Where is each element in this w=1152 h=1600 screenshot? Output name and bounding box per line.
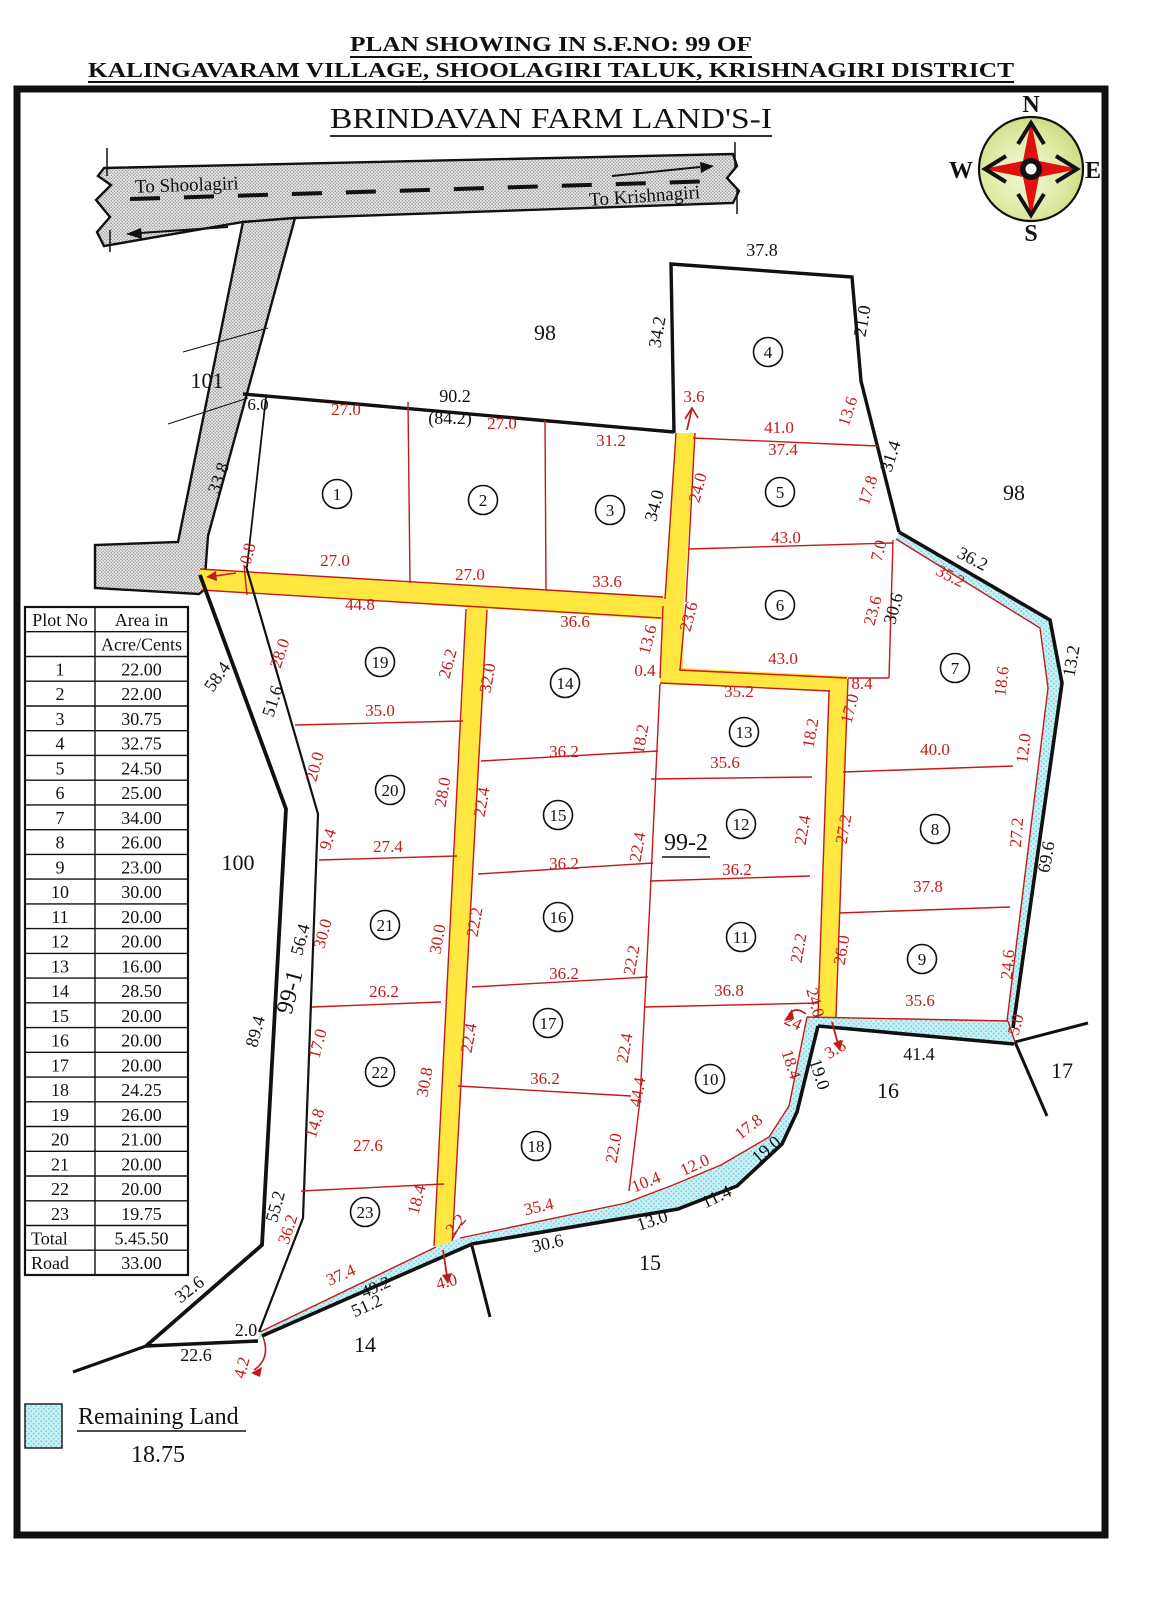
svg-text:36.6: 36.6 <box>560 612 590 631</box>
svg-text:16: 16 <box>877 1078 899 1103</box>
svg-text:98: 98 <box>1003 480 1025 505</box>
svg-text:7: 7 <box>56 808 65 828</box>
svg-text:Road: Road <box>31 1253 69 1273</box>
svg-text:18: 18 <box>51 1080 69 1100</box>
svg-text:27.0: 27.0 <box>320 551 350 570</box>
svg-text:100: 100 <box>222 850 255 875</box>
svg-text:6: 6 <box>56 783 65 803</box>
svg-text:28.50: 28.50 <box>121 981 162 1001</box>
svg-text:31.2: 31.2 <box>596 431 626 450</box>
svg-text:20: 20 <box>382 781 399 800</box>
svg-text:32.75: 32.75 <box>121 734 162 754</box>
svg-text:2: 2 <box>479 491 488 510</box>
svg-text:15: 15 <box>639 1250 661 1275</box>
svg-text:36.2: 36.2 <box>549 964 579 983</box>
svg-text:35.2: 35.2 <box>724 682 754 701</box>
svg-text:15: 15 <box>550 806 567 825</box>
svg-text:3.6: 3.6 <box>683 387 704 406</box>
svg-text:34.00: 34.00 <box>121 808 162 828</box>
svg-text:21: 21 <box>377 916 394 935</box>
svg-text:1: 1 <box>333 485 342 504</box>
svg-text:36.2: 36.2 <box>530 1069 560 1088</box>
svg-text:5: 5 <box>776 483 785 502</box>
svg-text:14: 14 <box>51 981 69 1001</box>
svg-text:20.00: 20.00 <box>121 1055 162 1075</box>
svg-text:(84.2): (84.2) <box>428 408 472 429</box>
svg-text:98: 98 <box>534 320 556 345</box>
svg-text:22.00: 22.00 <box>121 659 162 679</box>
svg-text:10: 10 <box>702 1070 719 1089</box>
svg-text:21.00: 21.00 <box>121 1130 162 1150</box>
svg-text:20.00: 20.00 <box>121 907 162 927</box>
svg-text:26.00: 26.00 <box>121 1105 162 1125</box>
svg-text:23.00: 23.00 <box>121 857 162 877</box>
svg-text:37.4: 37.4 <box>768 440 798 459</box>
svg-text:35.0: 35.0 <box>365 701 395 720</box>
svg-text:2.0: 2.0 <box>235 1320 258 1340</box>
svg-text:Remaining Land: Remaining Land <box>78 1404 239 1430</box>
svg-text:PLAN SHOWING IN S.F.NO: 99 OF: PLAN SHOWING IN S.F.NO: 99 OF <box>350 32 752 56</box>
svg-text:W: W <box>949 158 973 184</box>
svg-text:33.6: 33.6 <box>592 572 622 591</box>
svg-text:30.75: 30.75 <box>121 709 162 729</box>
svg-text:14: 14 <box>354 1332 376 1357</box>
svg-text:41.0: 41.0 <box>764 418 794 437</box>
svg-text:19.75: 19.75 <box>121 1204 162 1224</box>
svg-text:11: 11 <box>733 928 749 947</box>
svg-text:90.2: 90.2 <box>439 386 471 406</box>
svg-text:Acre/Cents: Acre/Cents <box>101 635 182 655</box>
svg-text:11: 11 <box>51 907 68 927</box>
svg-text:27.2: 27.2 <box>1006 817 1028 848</box>
svg-text:37.8: 37.8 <box>913 877 943 896</box>
svg-text:17: 17 <box>1051 1058 1073 1083</box>
svg-text:99-2: 99-2 <box>664 830 708 856</box>
svg-text:16: 16 <box>51 1031 69 1051</box>
svg-text:9: 9 <box>918 950 927 969</box>
svg-text:27.0: 27.0 <box>455 565 485 584</box>
svg-text:19: 19 <box>51 1105 69 1125</box>
svg-text:6.0: 6.0 <box>247 395 268 414</box>
svg-text:37.8: 37.8 <box>746 240 778 260</box>
svg-text:22: 22 <box>51 1179 69 1199</box>
svg-text:5.45.50: 5.45.50 <box>115 1229 169 1249</box>
svg-text:22.00: 22.00 <box>121 684 162 704</box>
svg-text:3: 3 <box>606 501 615 520</box>
svg-text:S: S <box>1024 221 1037 247</box>
svg-text:8: 8 <box>931 820 940 839</box>
svg-text:12: 12 <box>51 932 69 952</box>
svg-text:26.00: 26.00 <box>121 833 162 853</box>
svg-text:24.25: 24.25 <box>121 1080 162 1100</box>
svg-text:27.0: 27.0 <box>331 400 361 419</box>
svg-text:4: 4 <box>764 343 773 362</box>
svg-text:14: 14 <box>557 674 575 693</box>
svg-text:15: 15 <box>51 1006 69 1026</box>
svg-text:0.4: 0.4 <box>634 661 656 680</box>
svg-text:20.00: 20.00 <box>121 1179 162 1199</box>
svg-text:19: 19 <box>372 653 389 672</box>
svg-text:44.8: 44.8 <box>345 595 375 614</box>
svg-text:16: 16 <box>550 908 567 927</box>
svg-text:43.0: 43.0 <box>771 528 801 547</box>
svg-text:23: 23 <box>51 1204 69 1224</box>
svg-text:9: 9 <box>56 857 65 877</box>
svg-text:36.8: 36.8 <box>714 981 744 1000</box>
svg-text:101: 101 <box>191 368 224 393</box>
svg-text:27.4: 27.4 <box>373 837 403 856</box>
svg-text:36.2: 36.2 <box>549 854 579 873</box>
svg-text:26.2: 26.2 <box>369 982 399 1001</box>
svg-text:18: 18 <box>528 1137 545 1156</box>
svg-text:18.75: 18.75 <box>131 1442 185 1468</box>
svg-text:21: 21 <box>51 1154 69 1174</box>
svg-text:20: 20 <box>51 1130 69 1150</box>
svg-text:E: E <box>1085 158 1101 184</box>
svg-text:20.00: 20.00 <box>121 932 162 952</box>
svg-text:23: 23 <box>357 1203 374 1222</box>
svg-text:36.2: 36.2 <box>722 860 752 879</box>
svg-text:Plot No: Plot No <box>32 610 88 630</box>
svg-text:To Shoolagiri: To Shoolagiri <box>135 173 239 198</box>
svg-text:40.0: 40.0 <box>920 740 950 759</box>
svg-text:33.00: 33.00 <box>121 1253 162 1273</box>
svg-text:8: 8 <box>56 833 65 853</box>
svg-text:Total: Total <box>31 1229 68 1249</box>
svg-text:7: 7 <box>951 659 960 678</box>
svg-text:20.00: 20.00 <box>121 1031 162 1051</box>
svg-text:35.6: 35.6 <box>710 753 740 772</box>
svg-text:27.6: 27.6 <box>353 1136 383 1155</box>
svg-text:22: 22 <box>372 1063 389 1082</box>
svg-text:22.6: 22.6 <box>180 1345 212 1365</box>
svg-text:BRINDAVAN FARM LAND'S-I: BRINDAVAN FARM LAND'S-I <box>330 104 772 135</box>
svg-text:41.4: 41.4 <box>903 1044 935 1064</box>
svg-text:27.0: 27.0 <box>487 414 517 433</box>
svg-text:20.00: 20.00 <box>121 1154 162 1174</box>
svg-text:8.4: 8.4 <box>851 674 873 693</box>
svg-text:10: 10 <box>51 882 69 902</box>
svg-text:18.6: 18.6 <box>990 665 1012 697</box>
svg-text:4: 4 <box>56 734 65 754</box>
svg-text:5: 5 <box>56 758 65 778</box>
svg-text:24.6: 24.6 <box>997 949 1019 980</box>
svg-text:35.6: 35.6 <box>905 991 935 1010</box>
svg-text:2: 2 <box>56 684 65 704</box>
svg-text:30.00: 30.00 <box>121 882 162 902</box>
svg-text:36.2: 36.2 <box>549 742 579 761</box>
svg-text:13: 13 <box>51 956 69 976</box>
svg-text:12: 12 <box>733 815 750 834</box>
svg-text:12.0: 12.0 <box>1012 732 1034 764</box>
svg-text:20.00: 20.00 <box>121 1006 162 1026</box>
svg-text:43.0: 43.0 <box>768 649 798 668</box>
svg-text:16.00: 16.00 <box>121 956 162 976</box>
svg-text:25.00: 25.00 <box>121 783 162 803</box>
svg-text:Area in: Area in <box>115 610 168 630</box>
svg-text:24.50: 24.50 <box>121 758 162 778</box>
svg-text:13: 13 <box>736 723 753 742</box>
svg-text:KALINGAVARAM VILLAGE, SHOOLAGI: KALINGAVARAM VILLAGE, SHOOLAGIRI TALUK, … <box>88 58 1014 82</box>
svg-text:1: 1 <box>56 659 65 679</box>
svg-text:N: N <box>1022 92 1040 118</box>
svg-text:3: 3 <box>56 709 65 729</box>
svg-text:17: 17 <box>540 1014 558 1033</box>
svg-text:6: 6 <box>776 596 785 615</box>
svg-text:17: 17 <box>51 1055 69 1075</box>
